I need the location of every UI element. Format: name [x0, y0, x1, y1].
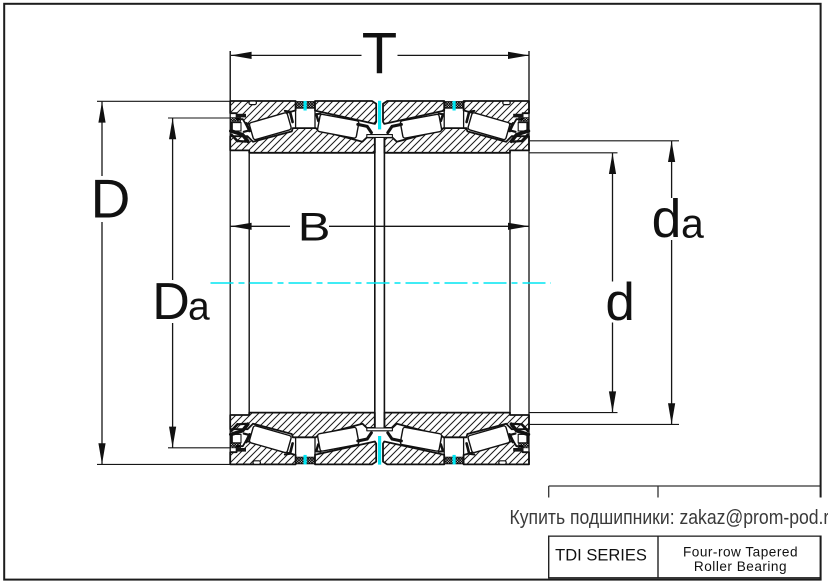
- svg-text:a: a: [681, 200, 704, 246]
- svg-text:D: D: [152, 273, 190, 331]
- svg-text:Four-row Tapered: Four-row Tapered: [683, 544, 798, 559]
- svg-text:a: a: [188, 286, 210, 329]
- svg-text:T: T: [362, 22, 397, 87]
- svg-text:D: D: [91, 168, 131, 230]
- svg-text:B: B: [298, 206, 331, 250]
- svg-text:Roller Bearing: Roller Bearing: [694, 559, 787, 574]
- svg-text:d: d: [605, 273, 634, 332]
- svg-text:Купить подшипники: zakaz@prom-: Купить подшипники: zakaz@prom-pod.ru: [510, 507, 828, 530]
- svg-text:d: d: [652, 190, 682, 249]
- svg-text:TDI SERIES: TDI SERIES: [555, 546, 647, 564]
